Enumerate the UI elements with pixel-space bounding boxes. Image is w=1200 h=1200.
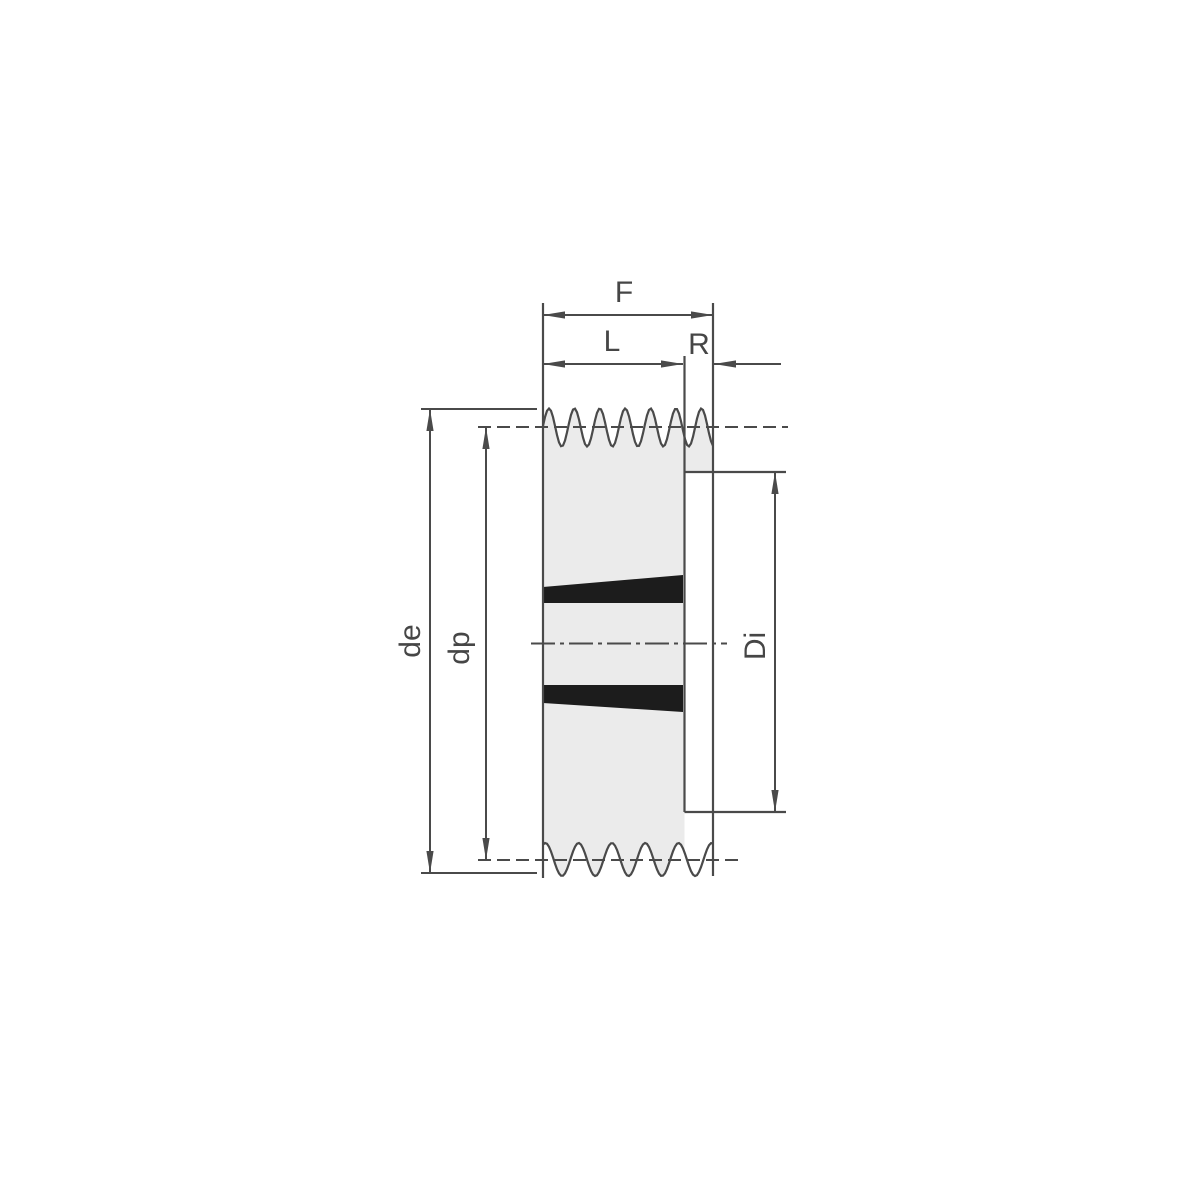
label-outside-diameter: de bbox=[396, 624, 426, 657]
label-bush-offset: R bbox=[688, 330, 710, 360]
label-rim-width: L bbox=[604, 327, 621, 357]
pulley-technical-drawing: F L R de dp Di bbox=[0, 0, 1200, 1200]
label-recess-diameter: Di bbox=[741, 632, 771, 660]
label-total-width: F bbox=[615, 278, 633, 308]
label-pitch-diameter: dp bbox=[445, 631, 475, 664]
pulley-drawing-svg bbox=[0, 0, 1200, 1200]
hub-recess bbox=[685, 472, 714, 876]
